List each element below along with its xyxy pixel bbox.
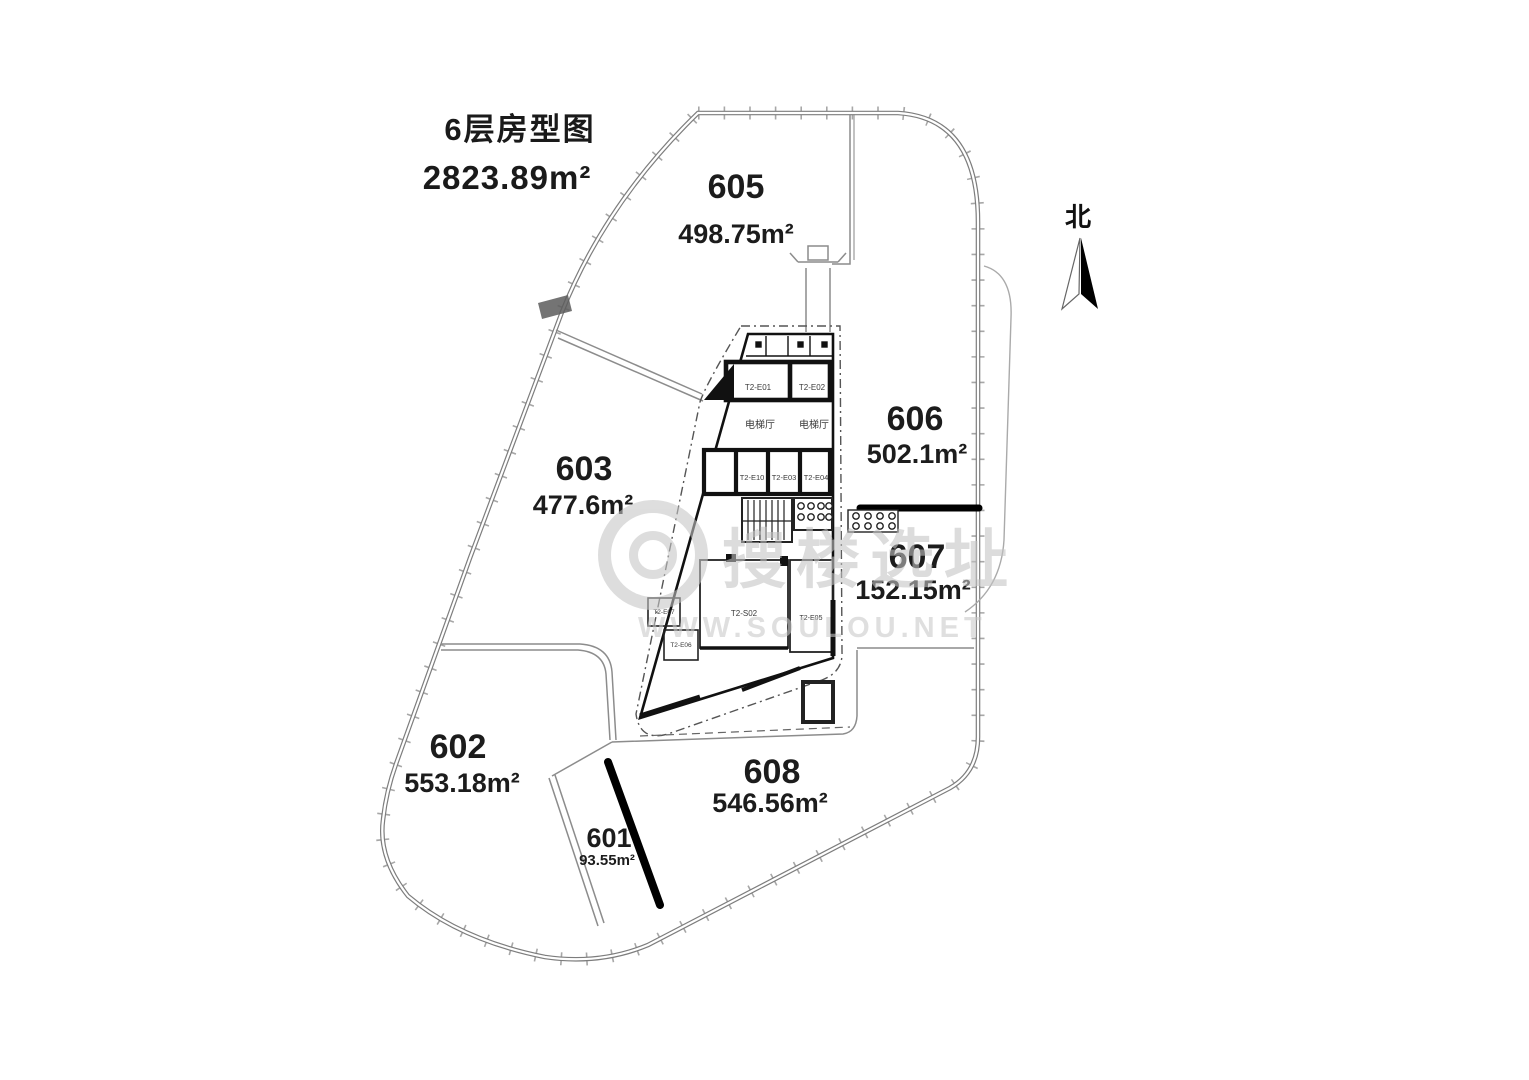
- floor-title: 6层房型图: [400, 104, 640, 149]
- label-s02: T2-S02: [731, 609, 758, 618]
- unit-602-area: 553.18m²: [404, 768, 520, 798]
- label-e10: T2-E10: [740, 473, 765, 482]
- partition-603-605b: [558, 338, 703, 401]
- label-e01: T2-E01: [745, 383, 772, 392]
- label-e04: T2-E04: [804, 473, 829, 482]
- partition-602-603: [441, 644, 616, 740]
- partition-602-603b: [441, 650, 610, 740]
- unit-607-label: 607 152.15m²: [855, 538, 971, 605]
- label-lobby1: 电梯厅: [745, 418, 775, 431]
- partition-601-connector: [552, 742, 612, 776]
- unit-601-id: 601: [586, 823, 631, 853]
- core-elevators-row2: [704, 450, 830, 494]
- floorplan-page: T2-E01 T2-E02 电梯厅 电梯厅 T2-E10 T2-E03 T2-E…: [0, 0, 1529, 1080]
- north-arrow-left: [1062, 238, 1080, 309]
- label-e03: T2-E03: [772, 473, 797, 482]
- unit-603-area: 477.6m²: [533, 490, 634, 520]
- total-area: 2823.89m²: [374, 159, 640, 197]
- north-arrow: 北: [1062, 202, 1098, 309]
- wc-607: [848, 510, 898, 532]
- label-e07: T2-E07: [653, 609, 675, 616]
- title-block: 6层房型图 2823.89m²: [400, 104, 640, 197]
- facade-offset-line: [965, 266, 1011, 612]
- unit-607-area: 152.15m²: [855, 575, 971, 605]
- unit-605-area: 498.75m²: [678, 219, 794, 249]
- unit-602-id: 602: [430, 728, 487, 766]
- unit-606-area: 502.1m²: [867, 439, 968, 469]
- unit-606-id: 606: [887, 400, 944, 438]
- label-lobby2: 电梯厅: [799, 418, 829, 431]
- north-arrow-right: [1081, 238, 1098, 309]
- partition-605-606: [832, 114, 850, 264]
- label-e06: T2-E06: [670, 642, 692, 649]
- partition-603-605: [556, 330, 702, 394]
- label-e05: T2-E05: [800, 615, 823, 622]
- unit-608-id: 608: [744, 753, 801, 791]
- core-elevators-row1: [704, 362, 830, 400]
- unit-606-label: 606 502.1m²: [867, 400, 968, 469]
- unit-605-label: 605 498.75m²: [678, 168, 794, 249]
- floorplan-drawing: T2-E01 T2-E02 电梯厅 电梯厅 T2-E10 T2-E03 T2-E…: [0, 0, 1529, 1080]
- service-core: T2-E01 T2-E02 电梯厅 电梯厅 T2-E10 T2-E03 T2-E…: [636, 326, 898, 736]
- core-neck-cap: [808, 246, 828, 260]
- core-neck: [790, 253, 846, 332]
- unit-608-label: 608 546.56m²: [712, 753, 828, 818]
- unit-601-label: 601 93.55m²: [579, 823, 635, 869]
- label-e02: T2-E02: [799, 383, 826, 392]
- unit-603-label: 603 477.6m²: [533, 450, 634, 520]
- unit-605-id: 605: [708, 168, 765, 206]
- facade-label-box: [538, 295, 572, 319]
- unit-607-id: 607: [889, 538, 946, 576]
- unit-603-id: 603: [556, 450, 613, 488]
- unit-602-label: 602 553.18m²: [404, 728, 520, 798]
- unit-601-area: 93.55m²: [579, 852, 635, 869]
- north-label: 北: [1065, 202, 1091, 232]
- core-wc: [794, 498, 832, 530]
- unit-608-area: 546.56m²: [712, 788, 828, 818]
